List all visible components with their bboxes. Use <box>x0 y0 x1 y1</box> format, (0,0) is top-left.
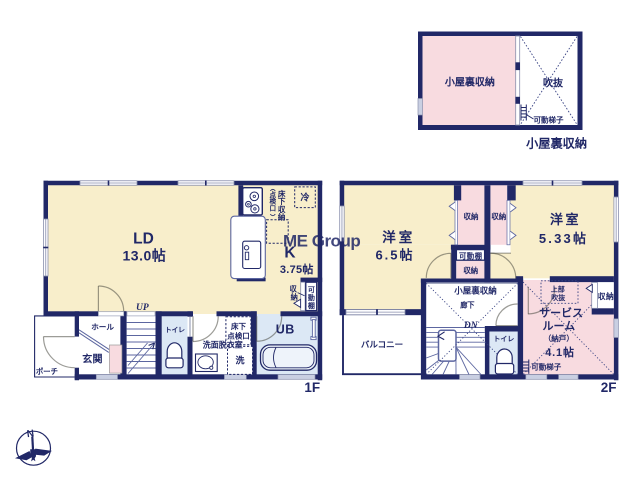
svg-text:床下: 床下 <box>231 321 246 331</box>
svg-text:DN: DN <box>463 321 479 331</box>
svg-text:収納: 収納 <box>598 291 615 301</box>
svg-text:洗: 洗 <box>235 355 244 366</box>
svg-text:洋室: 洋室 <box>550 212 581 227</box>
svg-text:小屋裏収納: 小屋裏収納 <box>525 135 587 150</box>
svg-text:洋室: 洋室 <box>382 229 415 245</box>
svg-text:動: 動 <box>308 293 315 302</box>
svg-text:（納戸）: （納戸） <box>544 333 574 343</box>
svg-text:棚: 棚 <box>308 301 315 310</box>
svg-text:上部: 上部 <box>551 284 565 293</box>
svg-text:トイレ: トイレ <box>165 326 185 334</box>
svg-text:1F: 1F <box>304 380 320 395</box>
svg-text:可: 可 <box>308 286 315 294</box>
svg-text:収納: 収納 <box>464 211 479 221</box>
svg-text:4.1帖: 4.1帖 <box>545 345 575 359</box>
svg-text:LD: LD <box>133 231 154 248</box>
svg-text:13.0帖: 13.0帖 <box>123 247 167 263</box>
svg-text:可動梯子: 可動梯子 <box>534 115 564 125</box>
svg-text:可動梯子: 可動梯子 <box>531 361 561 371</box>
svg-text:洗面脱衣室: 洗面脱衣室 <box>203 340 243 350</box>
svg-text:ME Group: ME Group <box>283 232 360 251</box>
svg-text:2F: 2F <box>601 380 617 395</box>
svg-text:ホール: ホール <box>91 322 114 331</box>
svg-text:ルーム: ルーム <box>542 320 575 333</box>
svg-text:口: 口 <box>270 204 277 212</box>
svg-text:玄関: 玄関 <box>82 353 103 366</box>
svg-text:点: 点 <box>270 190 277 199</box>
svg-text:6.5帖: 6.5帖 <box>375 248 414 263</box>
svg-text:トイレ: トイレ <box>493 335 514 343</box>
svg-text:納: 納 <box>291 293 298 302</box>
svg-text:廊下: 廊下 <box>460 301 475 310</box>
svg-text:UB: UB <box>276 323 295 337</box>
svg-text:吹抜: 吹抜 <box>551 293 566 302</box>
svg-text:納: 納 <box>278 212 286 222</box>
svg-text:小屋裏収納: 小屋裏収納 <box>444 75 495 88</box>
svg-text:5.33帖: 5.33帖 <box>539 231 588 246</box>
svg-text:N: N <box>26 428 35 440</box>
svg-text:小屋裏収納: 小屋裏収納 <box>453 286 497 296</box>
svg-text:UP: UP <box>136 303 149 313</box>
svg-text:可動棚: 可動棚 <box>459 251 482 260</box>
svg-text:冷: 冷 <box>300 192 309 203</box>
svg-text:点検口: 点検口 <box>227 331 250 341</box>
svg-text:収納: 収納 <box>463 265 478 275</box>
svg-text:収納: 収納 <box>491 211 506 221</box>
svg-text:3.75帖: 3.75帖 <box>280 262 314 276</box>
svg-text:ポーチ: ポーチ <box>36 366 58 376</box>
svg-text:検: 検 <box>270 197 277 206</box>
svg-text:吹抜: 吹抜 <box>543 77 564 90</box>
svg-text:サービス: サービス <box>539 306 583 320</box>
svg-text:バルコニー: バルコニー <box>361 340 403 350</box>
